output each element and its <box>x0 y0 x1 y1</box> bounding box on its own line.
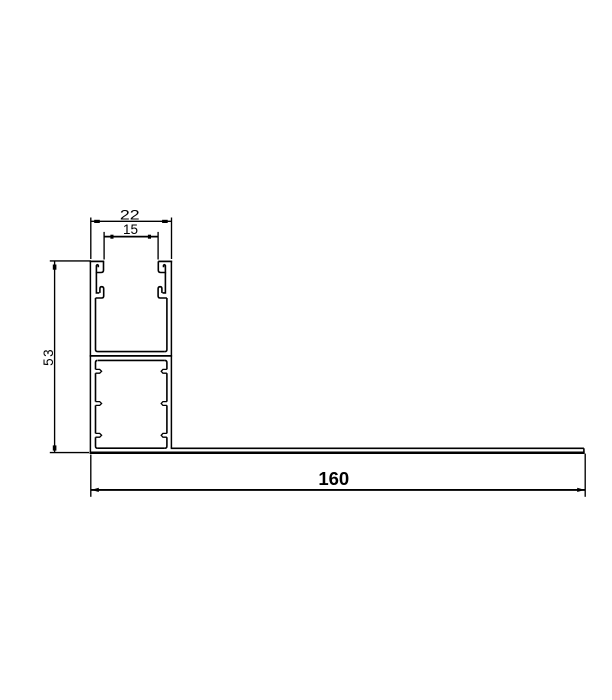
svg-text:160: 160 <box>318 468 349 489</box>
svg-text:15: 15 <box>123 222 138 237</box>
svg-text:53: 53 <box>41 348 56 366</box>
svg-text:22: 22 <box>120 208 140 223</box>
